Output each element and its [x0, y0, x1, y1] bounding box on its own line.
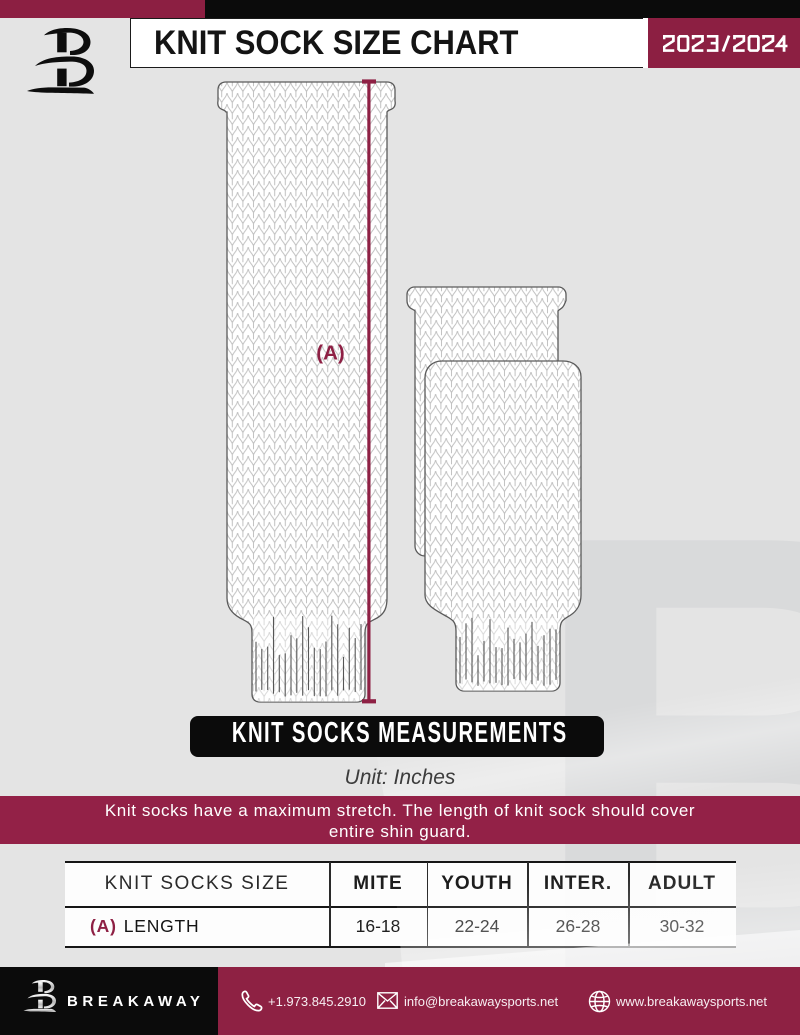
svg-text:(A): (A) — [316, 342, 344, 365]
